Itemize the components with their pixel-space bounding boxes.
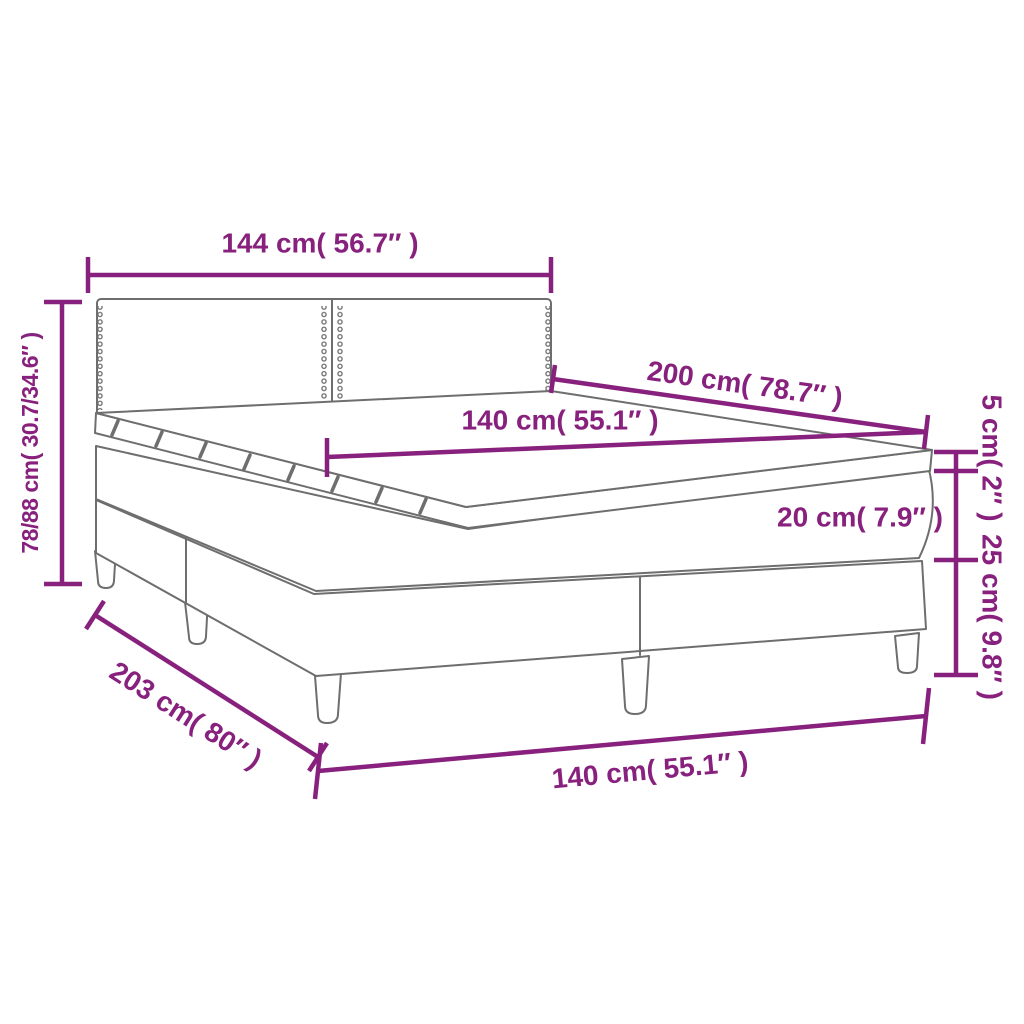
headboard-stud-row-left [97,306,104,410]
headboard-stud-row-center-left [321,306,328,400]
dim-headboard-width [88,257,551,293]
diagram-canvas: 144 cm( 56.7″ ) 78/88 cm( 30.7/34.6″ ) 2… [0,0,1024,1024]
topper-thickness-label: 5 cm( 2″ ) [977,394,1008,521]
dim-layer-heights [934,452,978,675]
total-height-label: 78/88 cm( 30.7/34.6″ ) [17,332,43,553]
leg-icon [622,656,649,714]
dim-total-height [44,302,82,584]
leg-icon [315,673,341,723]
bed-dimension-diagram: 144 cm( 56.7″ ) 78/88 cm( 30.7/34.6″ ) 2… [0,0,1024,1024]
headboard-width-label: 144 cm( 56.7″ ) [221,228,418,259]
base-height-label: 25 cm( 9.8″ ) [977,534,1008,700]
mattress-width-top-label: 140 cm( 55.1″ ) [461,405,658,436]
headboard-stud-row-center-right [337,306,344,400]
mattress-width-bottom-label: 140 cm( 55.1″ ) [550,746,749,795]
leg-icon [895,633,919,673]
mattress-thickness-label: 20 cm( 7.9″ ) [777,502,943,533]
